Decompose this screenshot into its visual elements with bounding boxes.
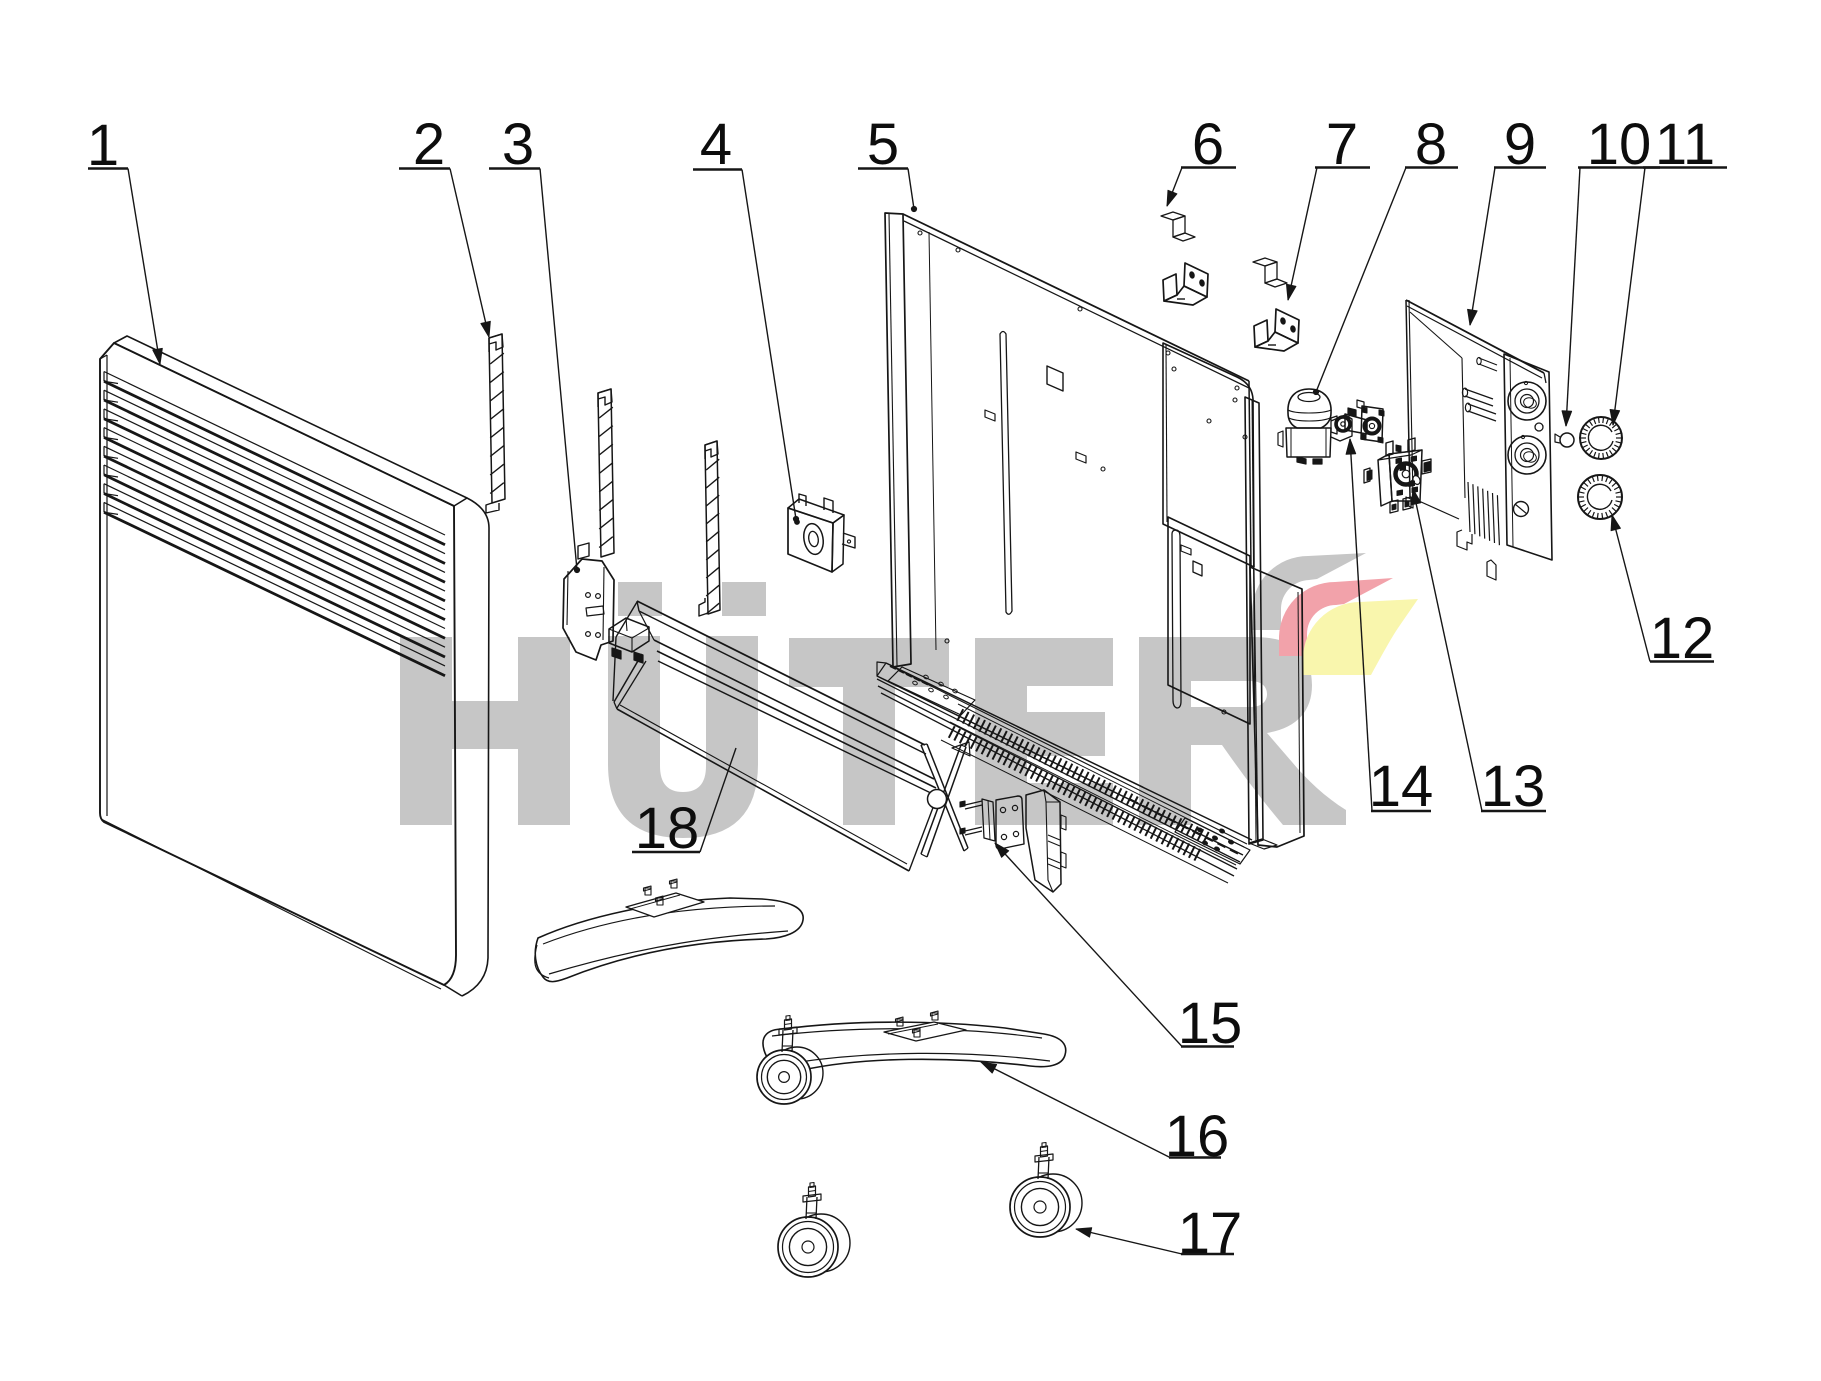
svg-text:4: 4 bbox=[700, 112, 732, 177]
svg-text:14: 14 bbox=[1369, 754, 1434, 819]
svg-text:17: 17 bbox=[1178, 1201, 1243, 1266]
svg-text:13: 13 bbox=[1481, 754, 1546, 819]
svg-text:16: 16 bbox=[1165, 1104, 1230, 1169]
